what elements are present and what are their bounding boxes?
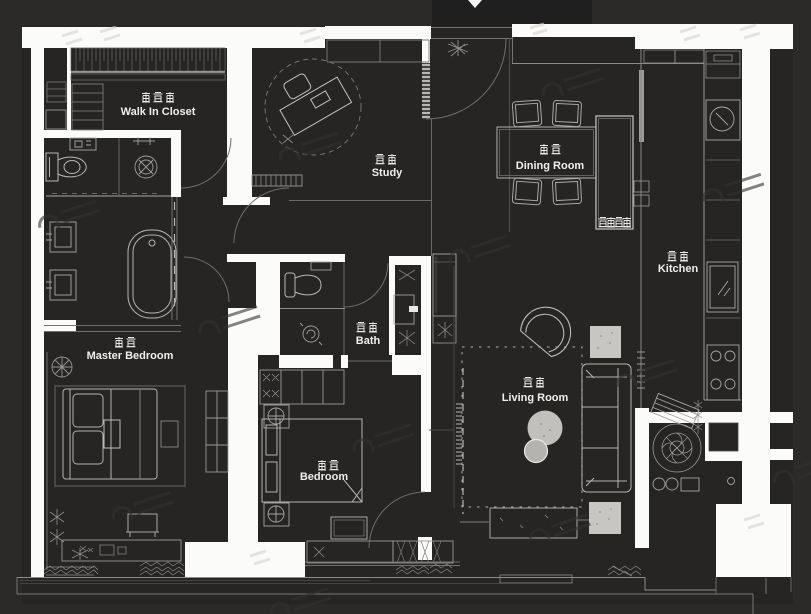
svg-text:Walk In Closet: Walk In Closet (121, 106, 196, 118)
svg-text:Study: Study (372, 167, 403, 179)
svg-text:Bedroom: Bedroom (300, 471, 349, 483)
svg-text:Kitchen: Kitchen (658, 263, 699, 275)
svg-text:Living Room: Living Room (502, 392, 569, 404)
svg-text:Dining Room: Dining Room (516, 160, 585, 172)
svg-text:Bath: Bath (356, 335, 381, 347)
svg-text:Master Bedroom: Master Bedroom (87, 350, 174, 362)
